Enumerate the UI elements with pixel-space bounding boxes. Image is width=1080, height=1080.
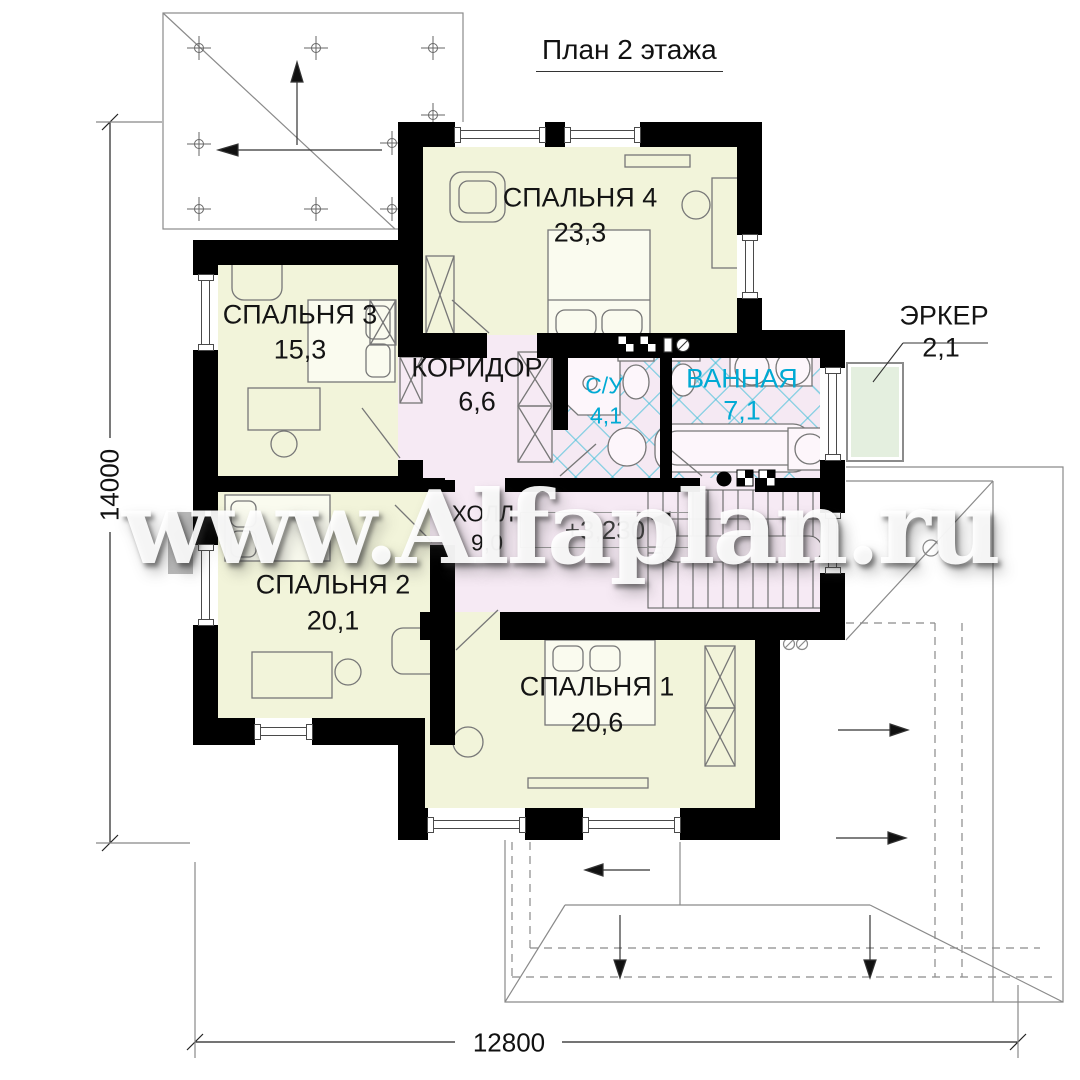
- room-label-wc: С/У: [585, 373, 623, 400]
- room-label-corridor: КОРИДОР: [411, 353, 542, 384]
- page-title: План 2 этажа: [536, 34, 723, 72]
- room-area-bedroom1: 20,6: [571, 708, 624, 739]
- room-label-bedroom1: СПАЛЬНЯ 1: [520, 672, 674, 703]
- room-area-bay: 2,1: [922, 333, 960, 364]
- room-label-bathroom: ВАННАЯ: [686, 364, 798, 395]
- room-label-bedroom3: СПАЛЬНЯ 3: [223, 300, 377, 331]
- room-area-bedroom2: 20,1: [307, 606, 360, 637]
- dimension-width: 12800: [473, 1028, 545, 1059]
- dimension-height: 14000: [95, 449, 126, 521]
- room-area-wc: 4,1: [590, 403, 622, 430]
- room-area-bathroom: 7,1: [723, 396, 761, 427]
- floor-plan-canvas: План 2 этажа СПАЛЬНЯ 4 23,3 СПАЛЬНЯ 3 15…: [0, 0, 1080, 1080]
- room-label-bedroom4: СПАЛЬНЯ 4: [503, 183, 657, 214]
- room-area-bedroom4: 23,3: [554, 218, 607, 249]
- room-label-bay: ЭРКЕР: [899, 301, 988, 332]
- room-area-corridor: 6,6: [458, 387, 496, 418]
- watermark: www.Alfaplan.ru: [122, 468, 998, 587]
- room-area-bedroom3: 15,3: [274, 335, 327, 366]
